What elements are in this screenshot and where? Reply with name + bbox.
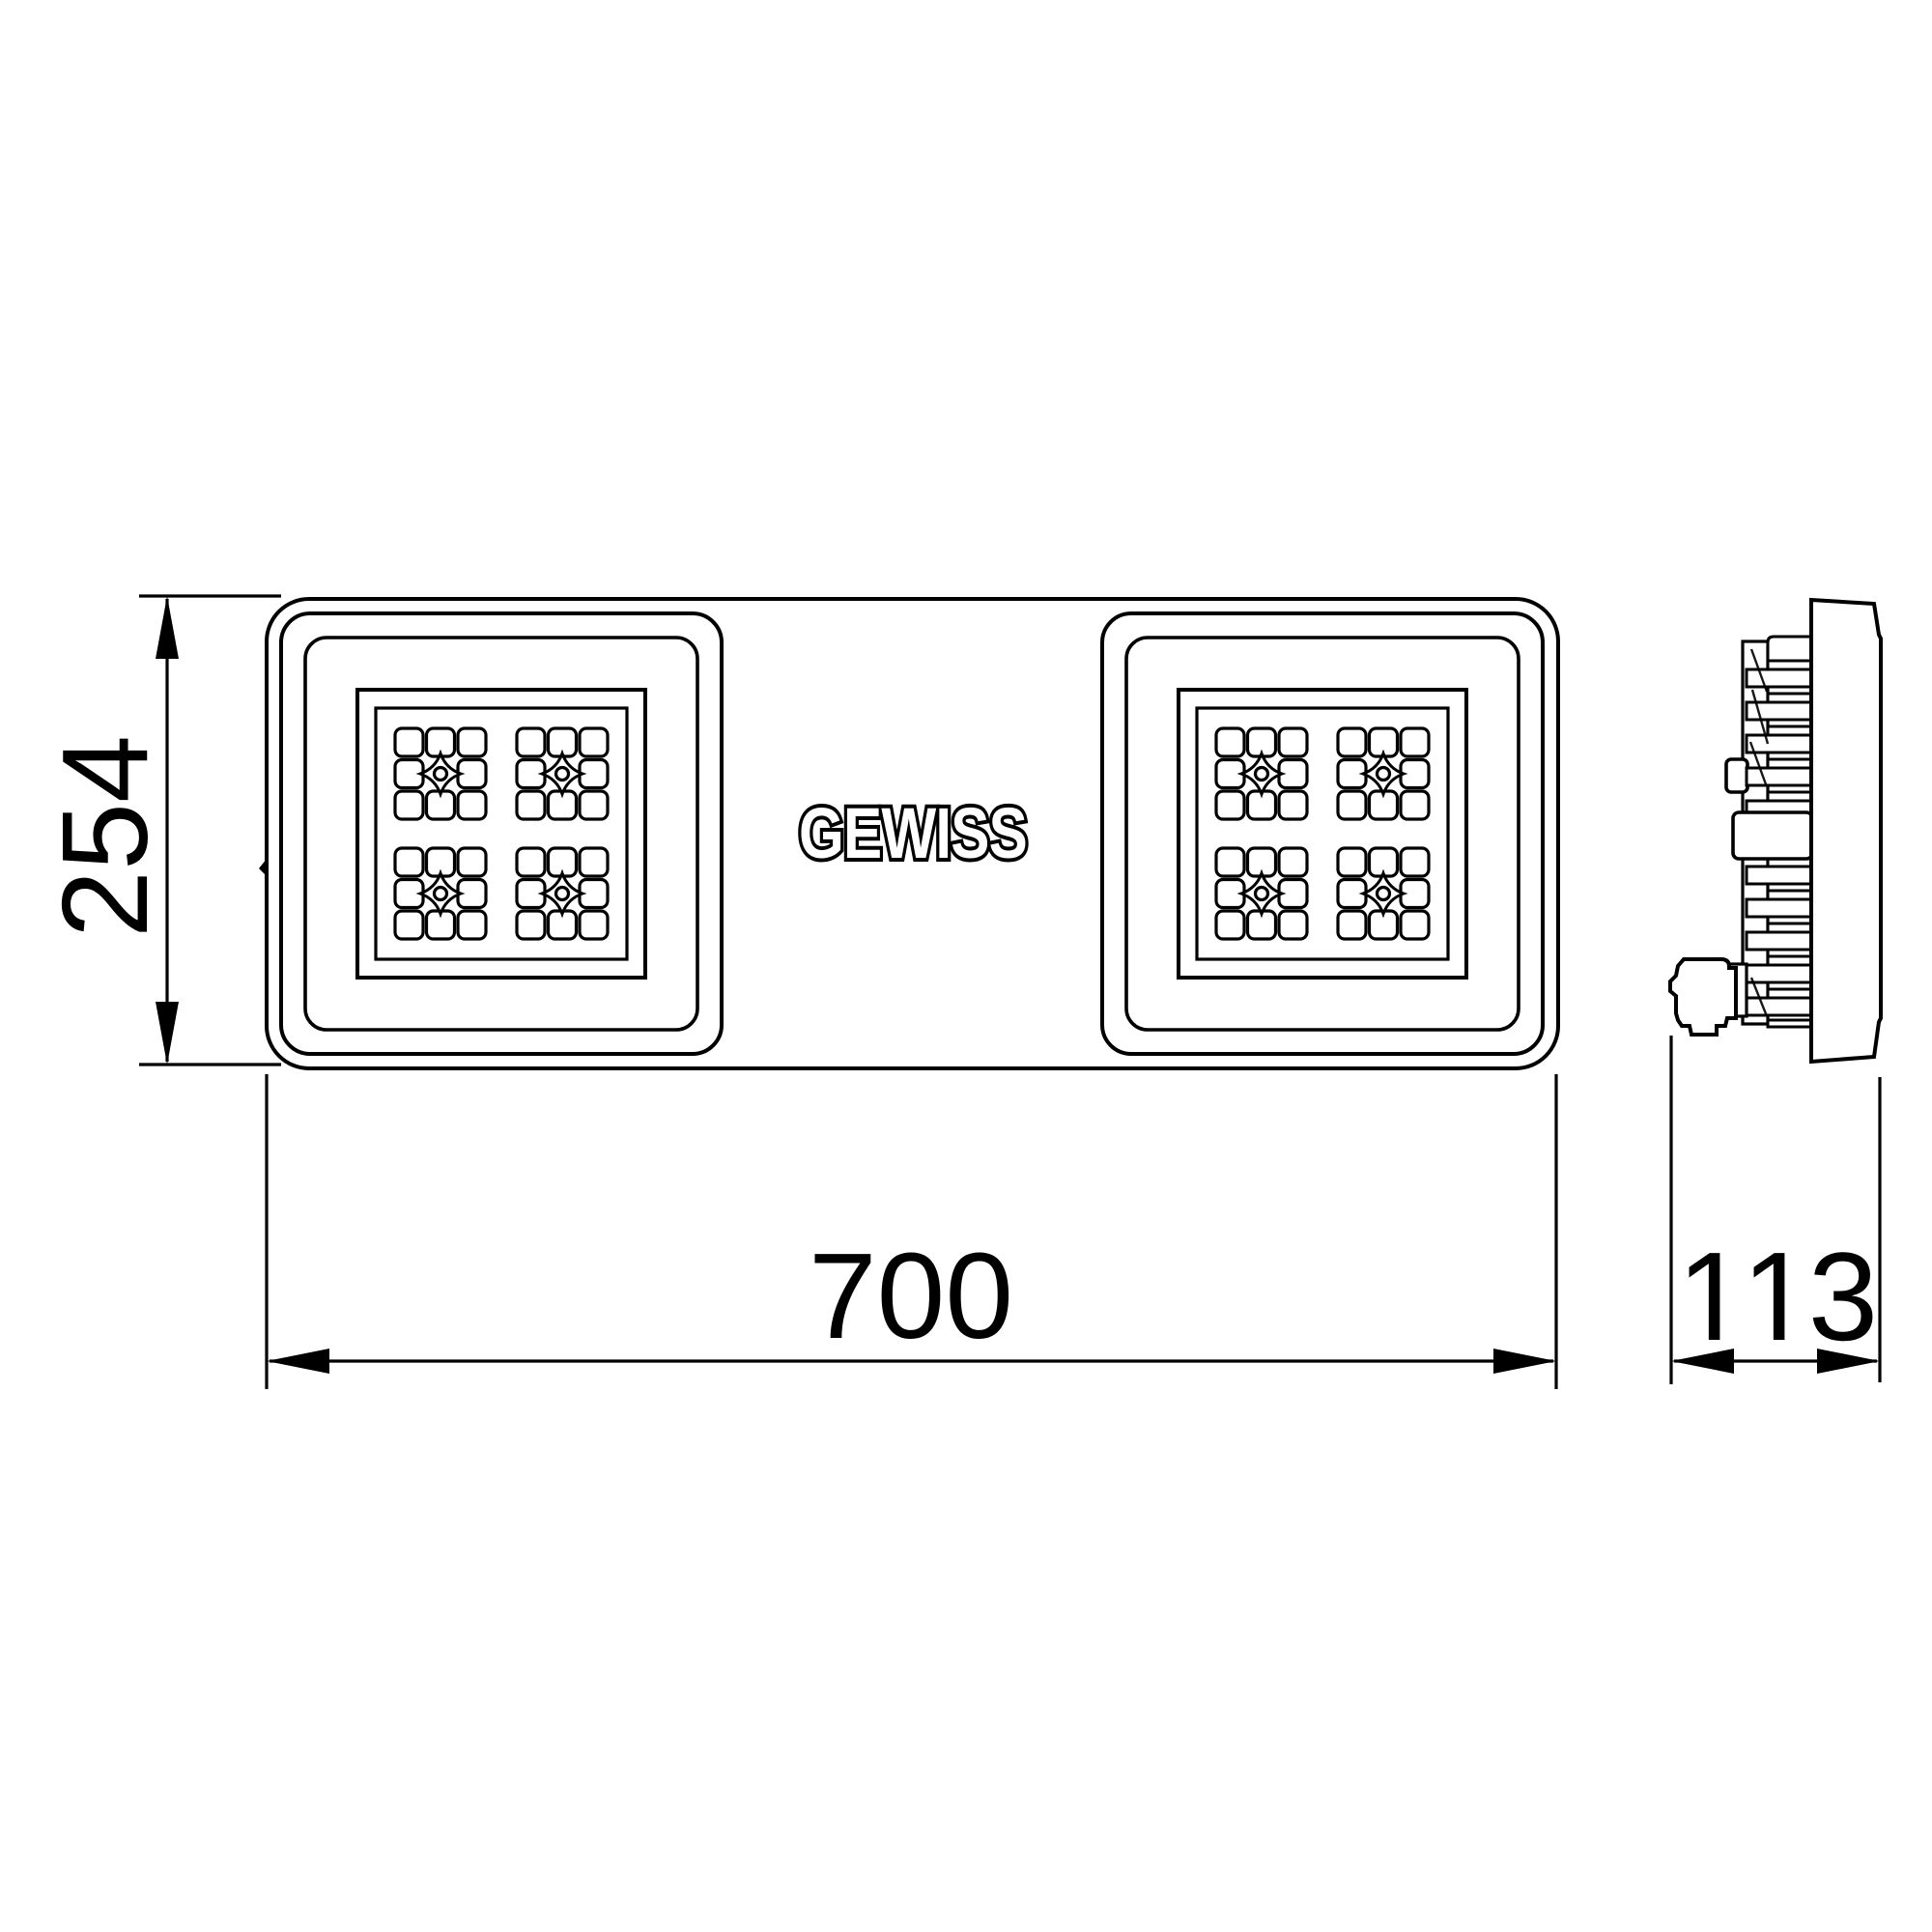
svg-text:700: 700 xyxy=(809,1228,1013,1364)
svg-text:GEWISS: GEWISS xyxy=(799,793,1027,873)
svg-text:3: 3 xyxy=(1808,1226,1878,1367)
svg-text:254: 254 xyxy=(37,735,173,938)
